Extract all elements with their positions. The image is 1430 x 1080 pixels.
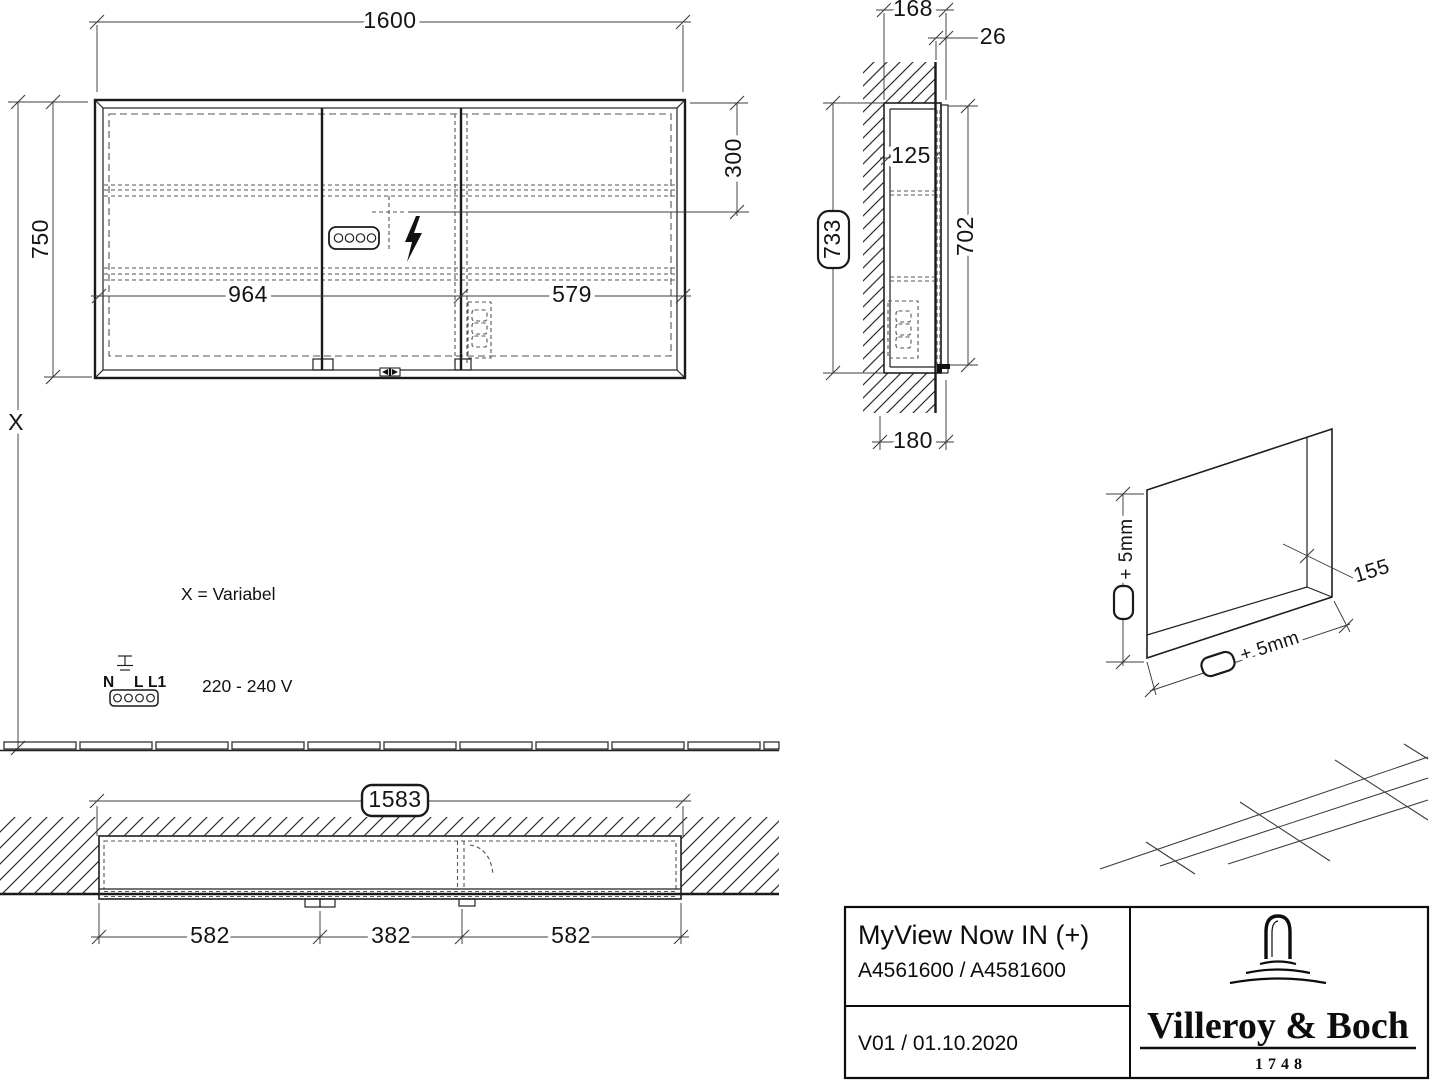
dim-front-width: 1600 (363, 7, 416, 33)
terminal-l-label: L (134, 674, 143, 691)
hinge-block (455, 359, 471, 370)
dim-niche-height: 733 (819, 219, 845, 259)
dim-right-door-width: 579 (552, 281, 592, 307)
side-view (863, 62, 950, 413)
technical-drawing-page: 1600 750 X 300 964 579 (0, 0, 1430, 1080)
shelf-lines (104, 185, 676, 280)
electrical-note: X = Variabel N L L1 220 - 240 V (103, 584, 293, 706)
drawing-canvas: 1600 750 X 300 964 579 (0, 0, 1430, 1080)
dim-plan-right: 582 (551, 922, 591, 948)
tile-grid (1100, 744, 1428, 874)
dim-top-depth: 168 (893, 0, 933, 21)
inner-dashed-outline (109, 114, 671, 356)
version-date: V01 / 01.10.2020 (858, 1032, 1018, 1055)
product-name: MyView Now IN (+) (858, 920, 1089, 950)
mounting-tab (320, 899, 335, 907)
niche-height-tolerance: + 5mm (1116, 518, 1137, 579)
terminal-n-label: N (103, 674, 114, 691)
door-slab (941, 105, 948, 373)
mounting-clip-icon (380, 368, 400, 376)
dim-body-height: 702 (952, 216, 978, 256)
dim-plan-left: 582 (190, 922, 230, 948)
dim-bottom-depth: 180 (893, 427, 933, 453)
niche-width-tolerance: + 5mm (1238, 627, 1303, 666)
title-block: MyView Now IN (+) A4561600 / A4581600 V0… (845, 907, 1428, 1078)
electrical-compartment (468, 302, 491, 358)
niche-perspective-view: + 5mm + 5mm 155 (1106, 429, 1393, 697)
plan-view (0, 817, 779, 907)
niche-depth: 155 (1351, 555, 1393, 588)
boxed-dim-symbol-horizontal (1199, 650, 1236, 678)
earth-ground-icon (117, 656, 133, 670)
mounting-tab (305, 899, 320, 907)
dim-inner-depth: 125 (891, 142, 931, 168)
connector-plug-icon (110, 690, 158, 706)
dim-front-height: 750 (27, 219, 53, 259)
dim-niche-width: 1583 (368, 786, 421, 812)
voltage-label: 220 - 240 V (202, 676, 293, 696)
power-socket-icon (329, 227, 379, 249)
mounting-tab (459, 899, 475, 906)
dim-left-door-width: 964 (228, 281, 268, 307)
terminal-l1-label: L1 (148, 674, 166, 691)
front-view (95, 100, 685, 378)
front-view-dimensions: 1600 750 X 300 964 579 (8, 7, 749, 755)
brand-year: 1748 (1255, 1056, 1307, 1073)
article-numbers: A4561600 / A4581600 (858, 959, 1066, 982)
brand-name: Villeroy & Boch (1147, 1005, 1409, 1047)
dim-front-variable-height: X (8, 409, 24, 435)
dim-plan-center: 382 (371, 922, 411, 948)
dim-socket-offset: 300 (720, 138, 746, 178)
lightning-bolt-icon (405, 216, 422, 262)
floor-line (0, 742, 779, 751)
boxed-dim-symbol-vertical (1114, 586, 1133, 619)
variable-note: X = Variabel (181, 584, 276, 604)
dim-overhang: 26 (980, 23, 1007, 49)
